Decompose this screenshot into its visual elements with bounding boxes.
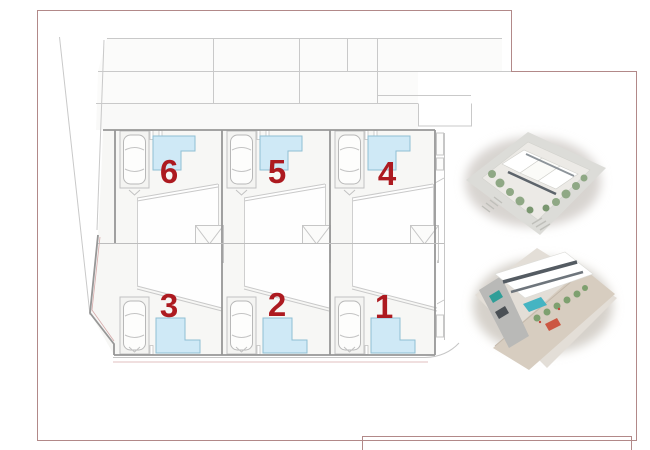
title-block-frame [363,437,632,450]
plot-number-2: 2 [268,288,286,321]
render-aerial-top [465,132,606,235]
site-plan-drawing [0,0,650,450]
site-plan-page: 6 5 4 3 2 1 [0,0,650,450]
plot-number-4: 4 [378,157,396,190]
plot-number-1: 1 [375,290,393,323]
plot-number-3: 3 [160,289,178,322]
plot-number-6: 6 [160,155,178,188]
plot-number-5: 5 [268,155,286,188]
render-aerial-bottom [473,248,617,370]
